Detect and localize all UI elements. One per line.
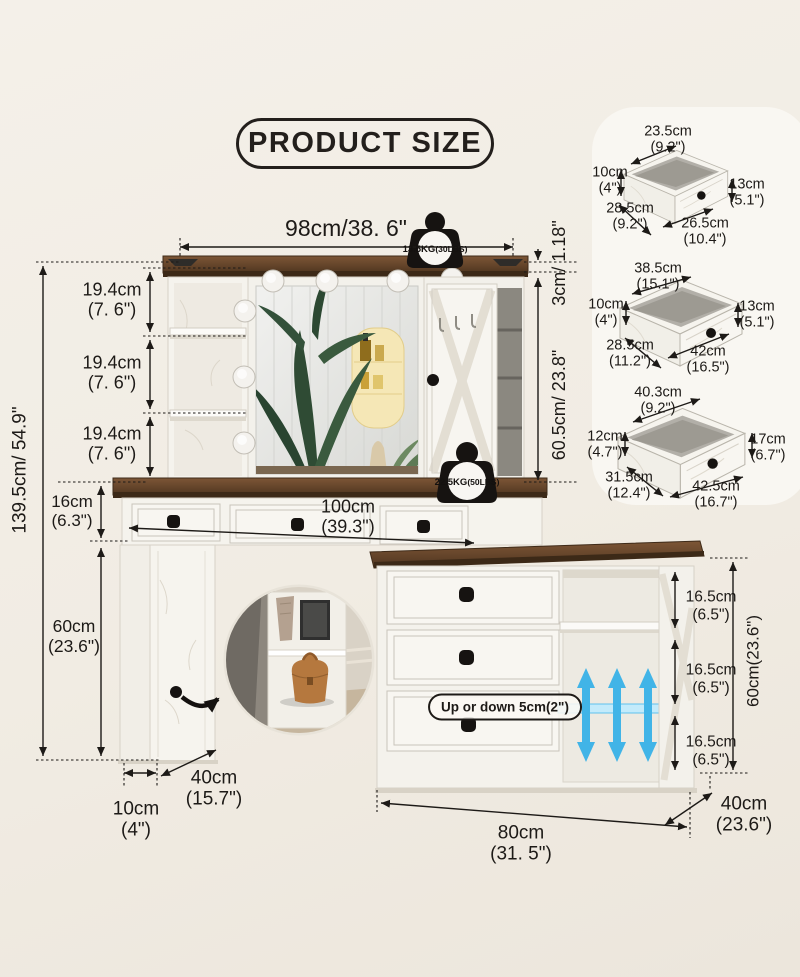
dim-top-thickness: 3cm/ 1.18": [549, 220, 569, 305]
drawer2-depth-left: 28.5cm(11.2"): [606, 338, 654, 371]
product-size-diagram: PRODUCT SIZE 98cm/38. 6" 19.4cm(7. 6") 1…: [0, 0, 800, 977]
dim-pedestal-width: 10cm(4"): [113, 799, 159, 842]
drawer2-width-top: 38.5cm(15.1"): [634, 261, 682, 294]
dim-hutch-height: 60.5cm/ 23.8": [549, 350, 569, 460]
drawer3-width-top: 40.3cm(9.2"): [634, 385, 682, 418]
drawer3-width-bottom: 42.5cm(16.7"): [692, 479, 740, 512]
drawer2-height-right: 13cm(5.1"): [739, 299, 774, 332]
weight-badge-top-text: 13.5KG(30LBS): [403, 239, 468, 257]
pedestal-door-knob: [170, 686, 182, 698]
dim-desk-height: 16cm(6.3"): [51, 492, 93, 530]
dim-shelf-gap-2: 19.4cm(7. 6"): [82, 353, 141, 394]
adjustable-shelf-note: Up or down 5cm(2"): [428, 694, 582, 721]
dim-desk-width: 100cm(39.3"): [321, 497, 375, 538]
dim-pedestal-height: 60cm(23.6"): [48, 617, 100, 657]
drawer1-height-left: 10cm(4"): [592, 165, 627, 198]
dim-pedestal-depth: 40cm(15.7"): [186, 768, 242, 811]
dim-total-height: 139.5cm/ 54.9": [9, 406, 30, 533]
barn-door-knob: [427, 374, 439, 386]
dim-shelf-gap-3: 19.4cm(7. 6"): [82, 424, 141, 465]
drawer1-width-top: 23.5cm(9.2"): [644, 124, 692, 157]
dim-cabinet-height: 60cm(23.6"): [743, 615, 762, 707]
dim-cabinet-shelf-1: 16.5cm(6.5"): [686, 589, 737, 624]
drawer3-height-right: 17cm(6.7"): [750, 432, 785, 465]
drawer1-height-right: 13cm(5.1"): [729, 177, 764, 210]
dim-cabinet-width: 80cm(31. 5"): [490, 823, 552, 866]
drawer3-height-left: 12cm(4.7"): [587, 429, 622, 462]
dim-shelf-gap-1: 19.4cm(7. 6"): [82, 280, 141, 321]
adjust-arrows: [577, 668, 657, 762]
drawer2-height-left: 10cm(4"): [588, 297, 623, 330]
pedestal: [118, 545, 218, 764]
weight-badge-front-text: 22.5KG(50LBS): [435, 472, 500, 490]
dim-hutch-width: 98cm/38. 6": [285, 215, 407, 241]
drawer1-width-bottom: 26.5cm(10.4"): [681, 216, 729, 249]
drawer2-width-bottom: 42cm(16.5"): [686, 344, 729, 377]
dim-cabinet-shelf-3: 16.5cm(6.5"): [686, 734, 737, 769]
page-title: PRODUCT SIZE: [236, 118, 494, 169]
dim-cabinet-shelf-2: 16.5cm(6.5"): [686, 662, 737, 697]
drawer1-depth-left: 28.5cm(9.2"): [606, 201, 654, 234]
vanity-mirror: [248, 270, 452, 482]
dim-cabinet-depth: 40cm(23.6"): [716, 794, 772, 837]
drawer3-depth-left: 31.5cm(12.4"): [605, 470, 653, 503]
side-cabinet: [370, 541, 704, 793]
